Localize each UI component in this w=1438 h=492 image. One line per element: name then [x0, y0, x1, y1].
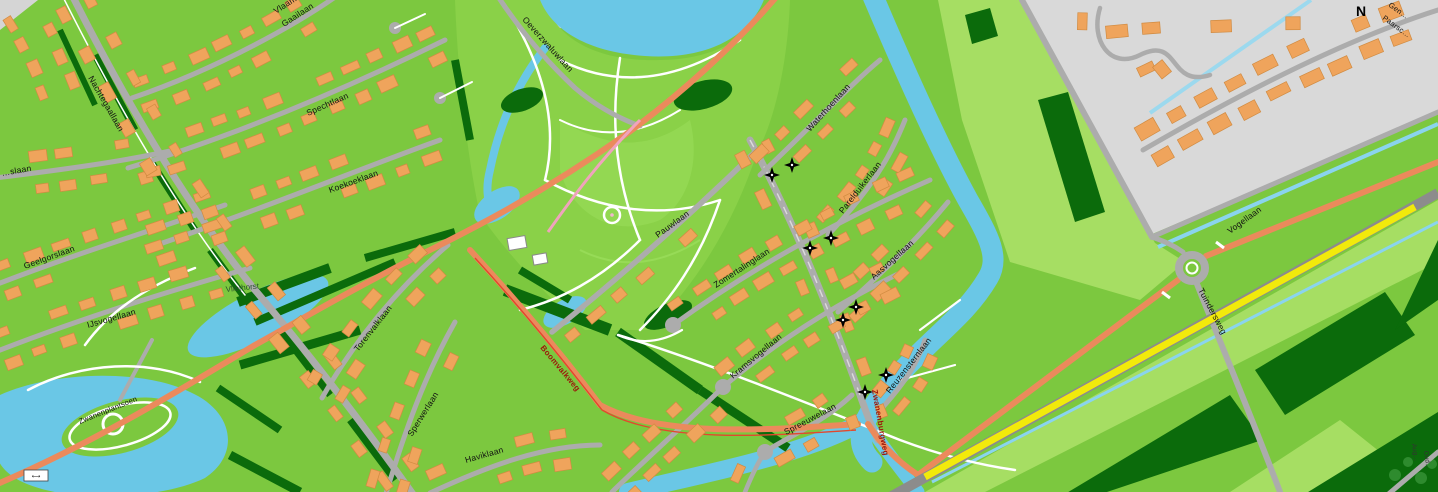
building: [1286, 17, 1300, 30]
building: [1105, 24, 1128, 39]
map-canvas[interactable]: Nachtegaallaan Vlaamse Gaailaan Spechtla…: [0, 0, 1438, 492]
map-viewport[interactable]: Nachtegaallaan Vlaamse Gaailaan Spechtla…: [0, 0, 1438, 492]
building: [1211, 20, 1232, 33]
building: [1077, 13, 1087, 30]
building: [553, 457, 572, 471]
building: [59, 179, 77, 191]
building: [54, 147, 72, 159]
building: [1142, 22, 1161, 35]
scale-label: ⟷: [32, 474, 41, 480]
building: [28, 149, 47, 163]
white-building: [532, 253, 548, 265]
building: [114, 139, 129, 150]
building: [35, 183, 49, 193]
north-letter: N: [1356, 3, 1366, 19]
building: [549, 428, 566, 440]
scale-indicator[interactable]: ⟷: [24, 470, 48, 481]
white-building: [507, 236, 527, 251]
